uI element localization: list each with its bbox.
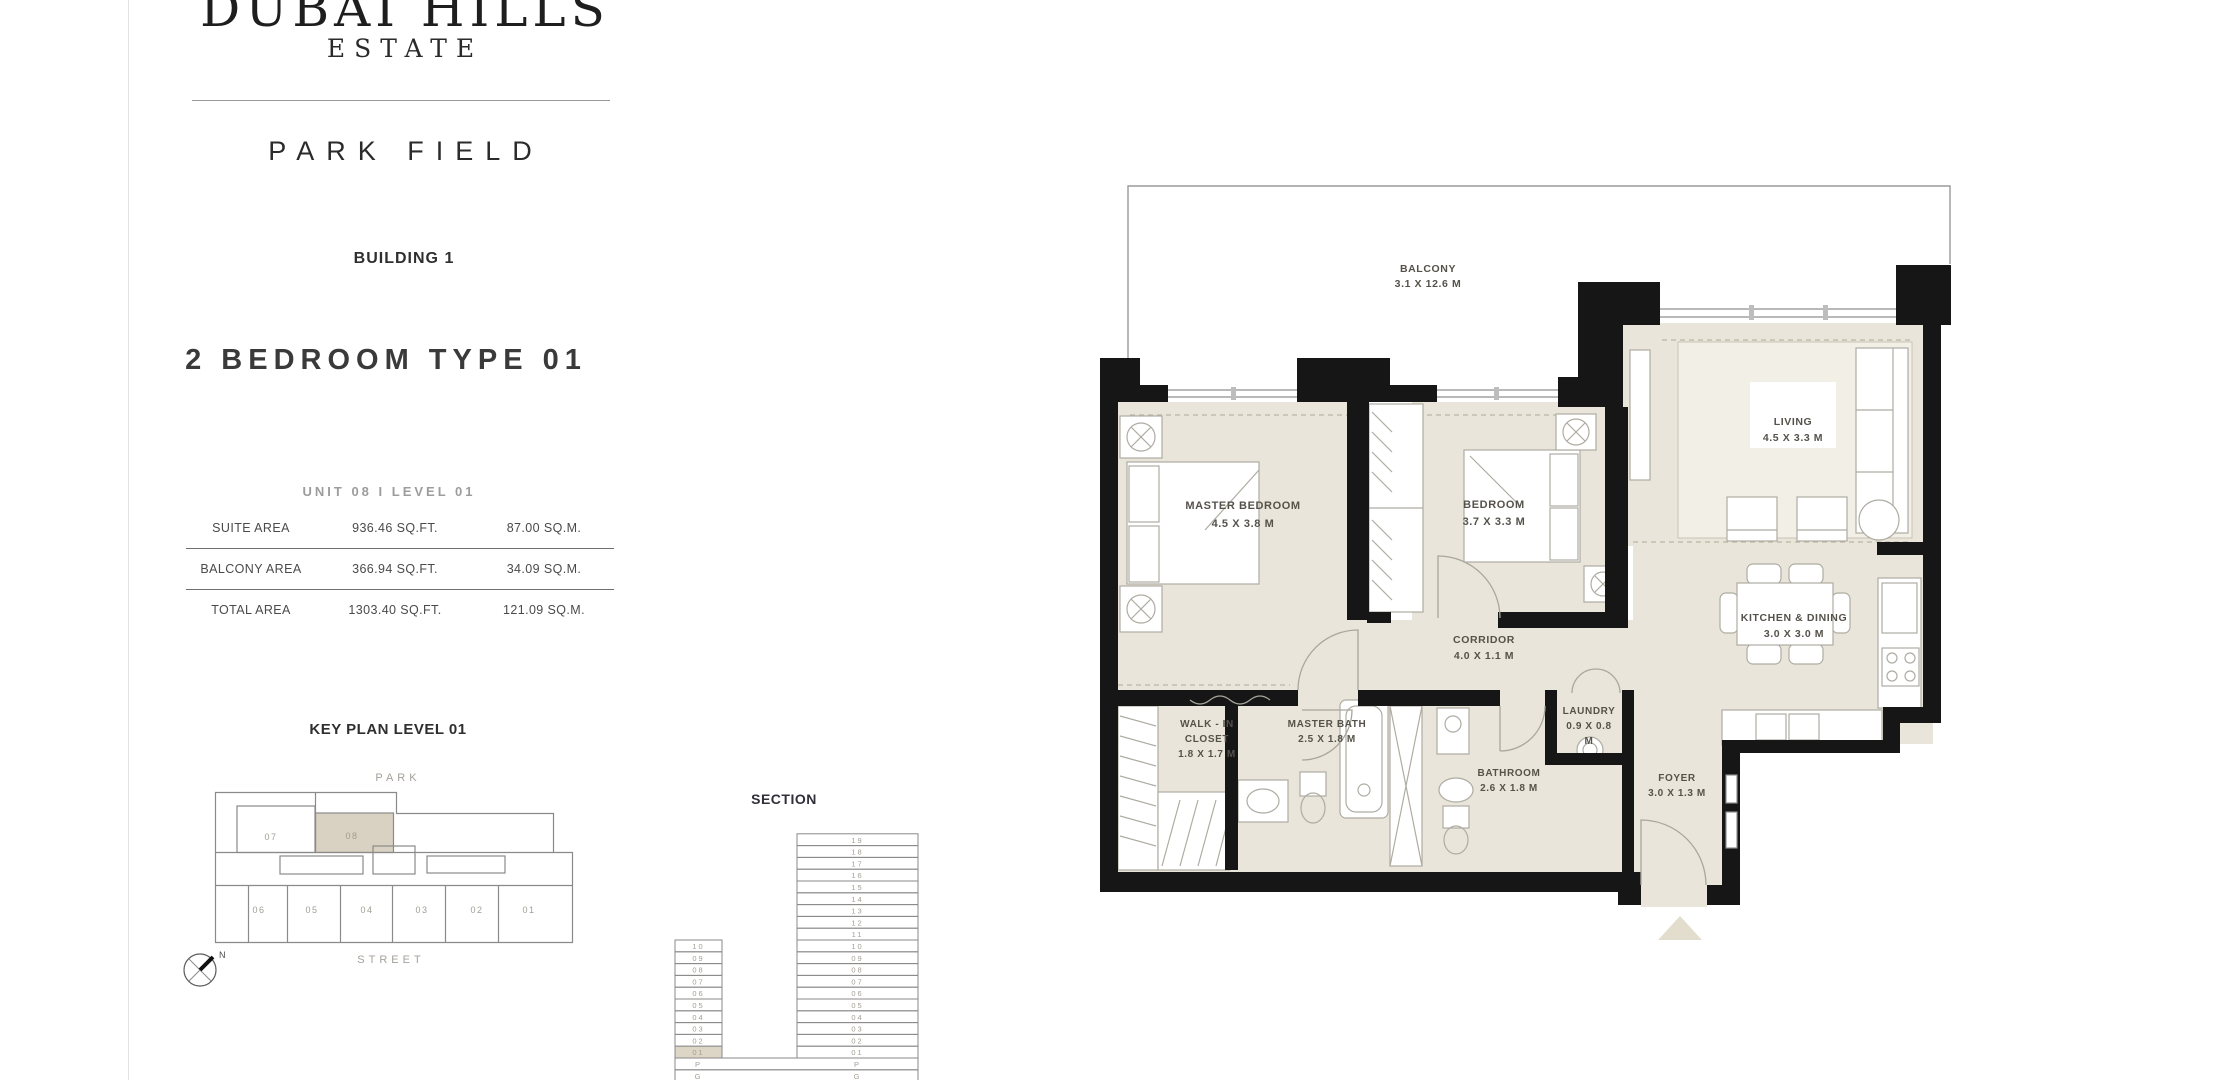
- tv-console: [1630, 350, 1650, 480]
- section-floor-label: 06: [692, 989, 704, 998]
- fridge: [1882, 583, 1917, 633]
- room-label-foyer: FOYER: [1658, 773, 1696, 784]
- room-label-balcony: 3.1 X 12.6 M: [1395, 278, 1462, 290]
- room-label-corridor: CORRIDOR: [1453, 634, 1515, 646]
- brand-logo-estate: ESTATE: [327, 34, 483, 63]
- shower: [1437, 708, 1469, 754]
- room-label-walk-in-closet: 1.8 X 1.7 M: [1178, 749, 1236, 760]
- area-label: TOTAL AREA: [186, 603, 316, 617]
- section-floor-label: 14: [851, 895, 863, 904]
- building-label: BUILDING 1: [354, 250, 455, 268]
- room-label-bathroom: BATHROOM: [1478, 768, 1541, 779]
- brand-divider: [192, 100, 610, 101]
- project-name: PARK FIELD: [268, 136, 544, 167]
- keyplan-unit-number: 03: [415, 905, 428, 915]
- section-floor-label: 01: [851, 1048, 863, 1057]
- dining-chair: [1789, 644, 1823, 664]
- section-base-label: G: [854, 1072, 862, 1080]
- room-label-master-bath: 2.5 X 1.8 M: [1298, 734, 1356, 745]
- room-label-walk-in-closet: WALK - IN: [1180, 719, 1234, 730]
- room-label-bedroom: 3.7 X 3.3 M: [1463, 516, 1526, 528]
- section-floor-label: 08: [692, 966, 704, 975]
- section-floor-label: 04: [851, 1013, 863, 1022]
- bathroom-sink: [1439, 778, 1473, 802]
- section-floor-label: 18: [851, 848, 863, 857]
- section-floor-label: 16: [851, 871, 863, 880]
- area-label: BALCONY AREA: [186, 562, 316, 576]
- room-label-master-bath: MASTER BATH: [1288, 719, 1367, 730]
- table-row: BALCONY AREA 366.94 SQ.FT. 34.09 SQ.M.: [186, 549, 614, 589]
- room-label-master-bedroom: 4.5 X 3.8 M: [1212, 518, 1275, 530]
- bathtub: [1340, 700, 1388, 818]
- area-sqft: 936.46 SQ.FT.: [316, 521, 474, 535]
- dining-chair: [1789, 564, 1823, 584]
- section-floor-label: 02: [692, 1036, 704, 1045]
- room-label-bedroom: BEDROOM: [1463, 499, 1525, 511]
- section-floor-label: 07: [692, 977, 704, 986]
- section-floor-label: 15: [851, 883, 863, 892]
- section-floor-label: 06: [851, 989, 863, 998]
- section-base-row: [675, 1070, 918, 1080]
- keyplan-unit-number: 02: [470, 905, 483, 915]
- section-floor-label: 03: [851, 1025, 863, 1034]
- north-compass-icon: N: [175, 940, 235, 995]
- vanity-sink: [1238, 780, 1288, 822]
- keyplan-building-outline: [216, 793, 573, 943]
- section-floor-label: 05: [692, 1001, 704, 1010]
- section-floor-label: 02: [851, 1036, 863, 1045]
- room-label-living: 4.5 X 3.3 M: [1763, 432, 1823, 444]
- section-floor-label: 12: [851, 918, 863, 927]
- keyplan-street-label: STREET: [357, 954, 424, 966]
- section-title: SECTION: [751, 791, 817, 807]
- dining-chair: [1747, 644, 1781, 664]
- area-sqft: 366.94 SQ.FT.: [316, 562, 474, 576]
- entrance-arrow-icon: [1658, 916, 1702, 940]
- section-floor-label: 13: [851, 907, 863, 916]
- side-table: [1859, 500, 1899, 540]
- section-floor-label: 17: [851, 859, 863, 868]
- room-label-laundry: LAUNDRY: [1563, 706, 1616, 717]
- area-table: SUITE AREA 936.46 SQ.FT. 87.00 SQ.M. BAL…: [186, 508, 614, 630]
- room-label-bathroom: 2.6 X 1.8 M: [1480, 783, 1538, 794]
- dining-chair: [1747, 564, 1781, 584]
- section-floor-label: 03: [692, 1025, 704, 1034]
- room-label-kitchen-dining: 3.0 X 3.0 M: [1764, 628, 1824, 640]
- brand-logo-name: DUBAI HILLS: [200, 0, 610, 34]
- keyplan-unit-number: 04: [360, 905, 373, 915]
- section-floor-label: 10: [851, 942, 863, 951]
- room-label-laundry: M: [1585, 736, 1594, 747]
- unit-type-title: 2 BEDROOM TYPE 01: [185, 344, 587, 377]
- armchair: [1797, 497, 1847, 541]
- room-label-balcony: BALCONY: [1400, 263, 1456, 275]
- section-base-label: P: [695, 1060, 702, 1069]
- section-floor-label: 09: [851, 954, 863, 963]
- sink: [1756, 714, 1786, 740]
- section-base-label: G: [695, 1072, 703, 1080]
- section-floor-label: 08: [851, 966, 863, 975]
- section-floor-label: 19: [851, 836, 863, 845]
- section-diagram: 1009080706050403020119181716151413121110…: [655, 820, 945, 1080]
- floorplan-brochure-page: DUBAI HILLS ESTATE PARK FIELD BUILDING 1…: [0, 0, 2220, 1080]
- closet-shelves: [1158, 792, 1230, 870]
- section-floor-label: 04: [692, 1013, 704, 1022]
- section-floor-label: 01: [692, 1048, 704, 1057]
- keyplan-drawing: PARK 0708060504030201 STREET: [180, 765, 600, 980]
- keyplan-unit-number: 05: [305, 905, 318, 915]
- compass-n-label: N: [219, 950, 226, 960]
- page-edge-divider: [128, 0, 129, 1080]
- dining-chair: [1720, 593, 1738, 633]
- room-label-walk-in-closet: CLOSET: [1185, 734, 1229, 745]
- keyplan-park-label: PARK: [375, 772, 420, 784]
- room-label-living: LIVING: [1774, 416, 1813, 428]
- section-floor-label: 11: [852, 930, 864, 939]
- table-row: TOTAL AREA 1303.40 SQ.FT. 121.09 SQ.M.: [186, 590, 614, 630]
- table-row: SUITE AREA 936.46 SQ.FT. 87.00 SQ.M.: [186, 508, 614, 548]
- unit-level-subtitle: UNIT 08 I LEVEL 01: [303, 484, 476, 499]
- armchair: [1727, 497, 1777, 541]
- keyplan-unit-number: 08: [345, 831, 358, 841]
- section-base-label: P: [854, 1060, 861, 1069]
- floor-plan-drawing: BALCONY3.1 X 12.6 MMASTER BEDROOM4.5 X 3…: [1090, 175, 1960, 960]
- keyplan-unit-number: 06: [252, 905, 265, 915]
- room-label-corridor: 4.0 X 1.1 M: [1454, 650, 1514, 662]
- keyplan-unit-number: 07: [264, 832, 277, 842]
- keyplan-title: KEY PLAN LEVEL 01: [309, 721, 466, 738]
- room-label-laundry: 0.9 X 0.8: [1566, 721, 1611, 732]
- room-label-kitchen-dining: KITCHEN & DINING: [1741, 612, 1847, 624]
- area-sqft: 1303.40 SQ.FT.: [316, 603, 474, 617]
- area-sqm: 87.00 SQ.M.: [474, 521, 614, 535]
- area-sqm: 121.09 SQ.M.: [474, 603, 614, 617]
- toilet: [1443, 806, 1469, 828]
- room-label-master-bedroom: MASTER BEDROOM: [1185, 500, 1300, 512]
- section-base-row: [675, 1058, 918, 1070]
- room-label-foyer: 3.0 X 1.3 M: [1648, 788, 1706, 799]
- section-floor-label: 10: [692, 942, 704, 951]
- keyplan-unit-number: 01: [522, 905, 535, 915]
- sink: [1789, 714, 1819, 740]
- area-label: SUITE AREA: [186, 521, 316, 535]
- section-floor-label: 09: [692, 954, 704, 963]
- section-floor-label: 05: [851, 1001, 863, 1010]
- section-floor-label: 07: [851, 977, 863, 986]
- area-sqm: 34.09 SQ.M.: [474, 562, 614, 576]
